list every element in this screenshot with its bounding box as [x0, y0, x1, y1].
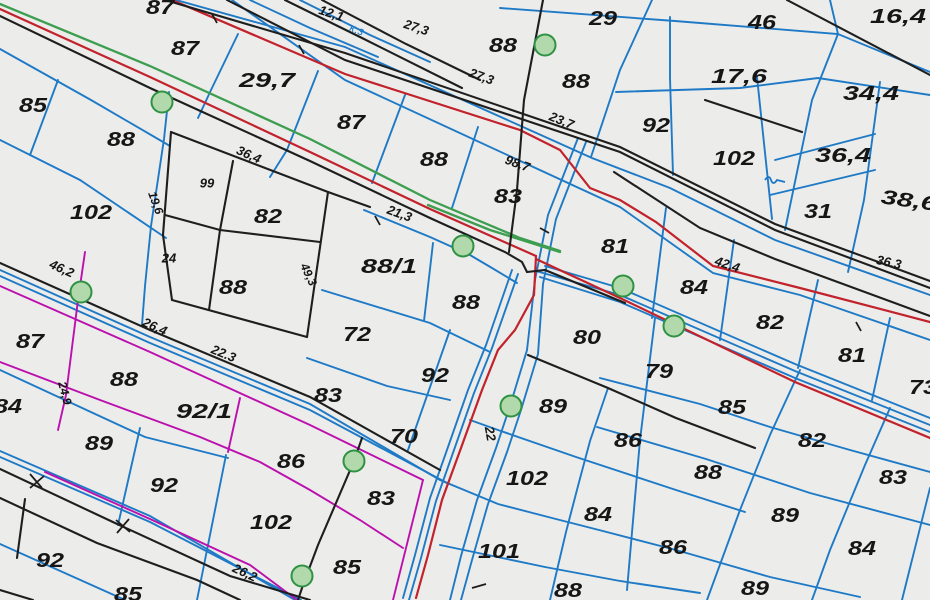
svg-text:88: 88 [554, 580, 583, 600]
svg-text:86: 86 [659, 537, 688, 559]
svg-text:73: 73 [909, 377, 930, 399]
svg-text:87: 87 [146, 0, 175, 19]
svg-text:82: 82 [756, 312, 784, 334]
svg-text:87: 87 [16, 331, 45, 353]
svg-text:46: 46 [747, 12, 777, 34]
svg-text:82: 82 [798, 430, 826, 452]
svg-text:92: 92 [642, 115, 670, 137]
svg-text:34,4: 34,4 [843, 83, 899, 105]
svg-text:70: 70 [390, 426, 418, 448]
svg-text:24: 24 [161, 251, 177, 266]
svg-text:88: 88 [110, 369, 139, 391]
svg-text:92: 92 [36, 550, 64, 572]
svg-text:89: 89 [741, 578, 770, 600]
svg-text:79: 79 [645, 361, 674, 383]
svg-text:102: 102 [506, 468, 548, 490]
svg-text:84: 84 [0, 396, 22, 418]
svg-text:17,6: 17,6 [711, 66, 768, 88]
svg-text:102: 102 [250, 512, 292, 534]
svg-text:84: 84 [680, 277, 708, 299]
svg-text:88: 88 [489, 35, 518, 57]
svg-text:80: 80 [573, 327, 601, 349]
svg-text:87: 87 [171, 38, 200, 60]
svg-text:102: 102 [70, 202, 112, 224]
svg-text:88: 88 [107, 129, 136, 151]
svg-text:87: 87 [337, 112, 366, 134]
svg-text:81: 81 [838, 345, 866, 367]
svg-text:89: 89 [539, 396, 568, 418]
svg-text:85: 85 [114, 584, 143, 600]
svg-text:16,4: 16,4 [870, 6, 926, 28]
svg-text:29,7: 29,7 [238, 70, 297, 92]
svg-text:92/1: 92/1 [176, 401, 232, 423]
svg-text:83: 83 [367, 488, 395, 510]
svg-text:72: 72 [343, 324, 371, 346]
svg-text:84: 84 [584, 504, 612, 526]
svg-text:88: 88 [694, 462, 723, 484]
svg-text:31: 31 [804, 201, 832, 223]
svg-text:88/1: 88/1 [361, 256, 417, 278]
svg-text:89: 89 [85, 433, 114, 455]
svg-text:85: 85 [333, 557, 362, 579]
svg-text:92: 92 [150, 475, 178, 497]
svg-text:29: 29 [588, 8, 618, 30]
svg-text:81: 81 [601, 236, 629, 258]
svg-text:101: 101 [478, 541, 520, 563]
svg-text:88: 88 [452, 292, 481, 314]
svg-text:88: 88 [219, 277, 248, 299]
svg-text:83: 83 [494, 186, 522, 208]
svg-text:85: 85 [718, 397, 747, 419]
svg-text:36,4: 36,4 [815, 145, 871, 167]
svg-text:92: 92 [421, 365, 449, 387]
svg-text:86: 86 [614, 430, 643, 452]
svg-text:88: 88 [420, 149, 449, 171]
svg-text:102: 102 [713, 148, 755, 170]
svg-text:83: 83 [879, 467, 907, 489]
svg-text:82: 82 [254, 206, 282, 228]
svg-text:99: 99 [200, 176, 215, 191]
svg-text:88: 88 [562, 71, 591, 93]
svg-text:85: 85 [19, 95, 48, 117]
svg-text:89: 89 [771, 505, 800, 527]
svg-text:84: 84 [848, 538, 876, 560]
svg-text:83: 83 [314, 385, 342, 407]
svg-text:86: 86 [277, 451, 306, 473]
